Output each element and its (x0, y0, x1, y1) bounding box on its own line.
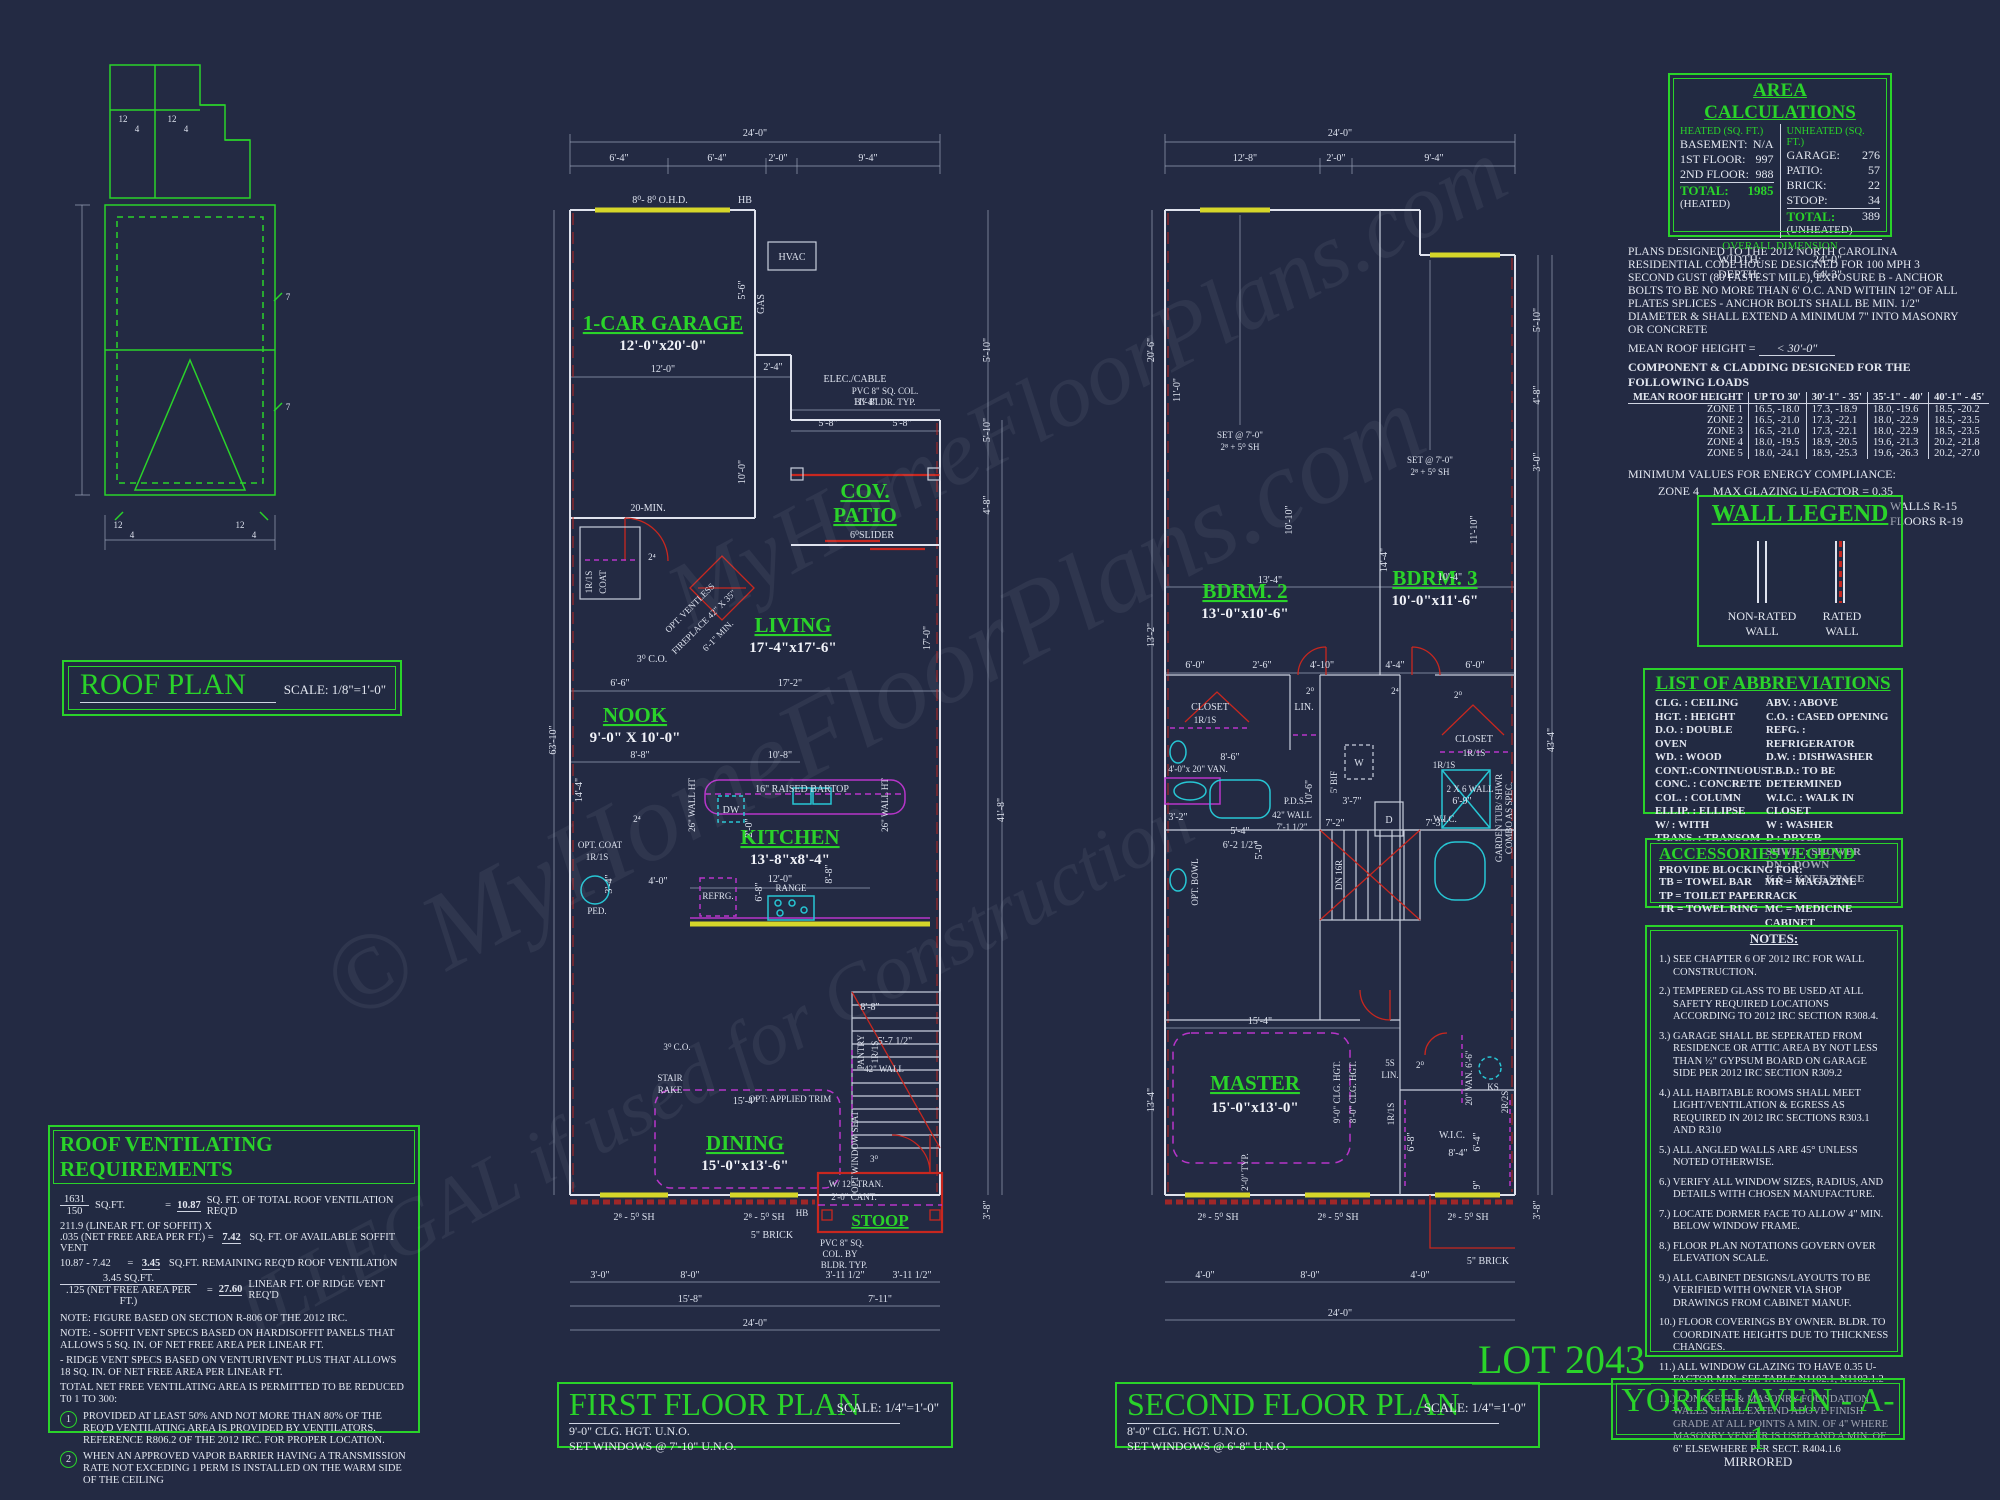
pitch-label: 12 (236, 520, 245, 530)
window-label: 2⁸ - 5⁰ SH (743, 1212, 784, 1223)
dim: 3'-4" (604, 874, 615, 893)
dim: 24'-0" (743, 128, 767, 139)
annotation: 3⁰ C.O. (637, 654, 667, 665)
result-text: SQ. FT. OF TOTAL ROOF VENTILATION REQ'D (207, 1195, 408, 1217)
label: STOOP: (1787, 193, 1828, 208)
dim: 5'-10" (1532, 308, 1543, 332)
annotation: ELEC./CABLE (823, 374, 886, 385)
annotation: PED. (587, 906, 606, 916)
sheet-titleblock: YORKHAVEN - A-1 MIRRORED (1611, 1378, 1905, 1440)
window-label: 2⁸ - 5⁰ SH (1317, 1212, 1358, 1223)
list-item: REFG. : REFRIGERATOR (1766, 724, 1891, 751)
annotation: COAT (598, 570, 608, 594)
item-text: WHEN AN APPROVED VAPOR BARRIER HAVING A … (83, 1451, 408, 1487)
dim: 2'-0" (768, 153, 787, 164)
dim: 4'-4" (1385, 660, 1404, 671)
dim: 3'-2" (1168, 812, 1187, 823)
table-row: ZONE 418.0, -19.518.9, -20.519.6, -21.32… (1628, 437, 1989, 448)
unit: SQ.FT. (124, 1273, 154, 1284)
window-label: 2⁸ - 5⁰ SH (613, 1212, 654, 1223)
total-sub: (UNHEATED) (1787, 224, 1881, 236)
non-rated-wall-label: NON-RATED WALL (1717, 609, 1807, 639)
pitch-label: 4 (184, 124, 189, 134)
total-value: 1985 (1748, 183, 1774, 198)
dim: 6'-8" (1406, 1132, 1417, 1151)
table-row: ZONE 216.5, -21.017.3, -22.118.0, -22.91… (1628, 415, 1989, 426)
energy-compliance-line: MINIMUM VALUES FOR ENERGY COMPLIANCE: (1628, 467, 1964, 482)
first-floor-drawing: 1-CAR GARAGE 12'-0"x20'-0" COV. PATIO LI… (540, 90, 1020, 1380)
dim: 12'-0" (768, 874, 792, 885)
dim: 8'-4" (1448, 1148, 1467, 1159)
dim: 5'-8" (818, 418, 837, 429)
rated-wall-label: RATED WALL (1807, 609, 1877, 639)
dim: 2'-0" (1326, 153, 1345, 164)
first-floor-titleblock: FIRST FLOOR PLAN SCALE: 1/4"=1'-0" 9'-0"… (557, 1382, 953, 1448)
roof-vent-panel: ROOF VENTILATING REQUIREMENTS 1631 150 S… (48, 1125, 420, 1433)
code-notes: PLANS DESIGNED TO THE 2012 NORTH CAROLIN… (1628, 246, 1964, 529)
energy-zone: ZONE 4 (1658, 484, 1699, 499)
roof-plan-drawing: 12 4 12 4 12 4 12 4 7 7 (60, 50, 390, 590)
annotation: 9'-0" CLG. HGT. (1332, 1061, 1342, 1123)
dim: 9'-4" (1424, 153, 1443, 164)
dim: 6'-0" (1185, 660, 1204, 671)
room-nook: NOOK (603, 703, 668, 727)
dim: 2'-6" (1252, 660, 1271, 671)
annotation: OPT. BOWL (1190, 858, 1200, 905)
list-item: NOTE: FIGURE BASED ON SECTION R-806 OF T… (60, 1313, 408, 1325)
unit: SQ.FT. (95, 1200, 125, 1211)
window-label: 2⁸ + 5⁰ SH (1220, 442, 1260, 452)
mean-roof-value: < 30'-0" (1759, 341, 1836, 356)
room-patio: PATIO (833, 503, 896, 527)
list-item: W : WASHER (1766, 819, 1891, 833)
dim: 5'-8" (892, 418, 911, 429)
value: 988 (1756, 167, 1774, 182)
annotation: 6⁰SLIDER (850, 530, 894, 541)
dim: 12'-0" (651, 364, 675, 375)
sheet-name: YORKHAVEN - A-1 (1613, 1382, 1903, 1458)
annotation: SET @ 7'-0" (1407, 455, 1453, 465)
dim: 3'-11 1/2" (825, 1270, 864, 1281)
list-item: TOTAL NET FREE VENTILATING AREA IS PERMI… (60, 1382, 408, 1406)
overall-dimension-header: OVERALL DIMENSION (1678, 240, 1882, 252)
annotation: 4'-0"x 20" VAN. (1168, 764, 1227, 774)
second-floor-scale: SCALE: 1/4"=1'-0" (1424, 1400, 1526, 1416)
total-label: TOTAL: (1680, 183, 1729, 198)
annotation: COL. BY (822, 1249, 858, 1259)
dim: 9" (1472, 1180, 1483, 1189)
vent-item-1: 1 PROVIDED AT LEAST 50% AND NOT MORE THA… (60, 1411, 408, 1447)
pitch-label: 4 (252, 530, 257, 540)
dim: 12'-8" (1233, 153, 1257, 164)
unheated-header: UNHEATED (SQ. FT.) (1787, 126, 1881, 148)
annotation: CLOSET (1455, 734, 1493, 745)
fraction-num: 3.45 (103, 1273, 121, 1284)
dim: 24'-0" (743, 1318, 767, 1329)
dim: 63'-10" (548, 725, 559, 754)
dim: 11'-0" (1172, 378, 1183, 402)
dim: 13'-4" (1146, 1088, 1157, 1112)
room-bdrm3: BDRM. 3 (1392, 566, 1477, 590)
dim: 10'-0" (737, 460, 748, 484)
total-value: 389 (1862, 209, 1880, 224)
annotation: 5" BRICK (751, 1230, 794, 1241)
total-label: TOTAL: (1787, 209, 1836, 224)
label: GARAGE: (1787, 148, 1840, 163)
width-label: WIDTH: (1718, 252, 1761, 267)
second-floor-titleblock: SECOND FLOOR PLAN SCALE: 1/4"=1'-0" 8'-0… (1115, 1382, 1540, 1448)
room-stoop: STOOP (851, 1211, 908, 1230)
dim: 15'-4" (733, 1096, 757, 1107)
second-floor-note2: SET WINDOWS @ 6'-8" U.N.O. (1127, 1439, 1528, 1454)
area-calc-title: AREA CALCULATIONS (1678, 80, 1882, 124)
annotation: 1R/1S (1386, 1103, 1396, 1126)
dim: 6'-4" (707, 153, 726, 164)
annotation: 42" WALL (864, 1064, 904, 1074)
list-item: 1.) SEE CHAPTER 6 OF 2012 IRC FOR WALL C… (1659, 954, 1889, 979)
annotation: GAS (756, 294, 767, 314)
equals: = (207, 1285, 213, 1296)
sheet-sub: MIRRORED (1613, 1454, 1903, 1470)
room-kitchen-size: 13'-8"x8'-4" (750, 852, 830, 868)
room-living-size: 17'-4"x17'-6" (749, 640, 836, 656)
dim: 2'-4" (763, 362, 782, 373)
annotation: GARDEN TUB/ SHWR (1494, 774, 1504, 862)
dim: 14'-4" (1379, 548, 1390, 572)
value: 22 (1868, 178, 1880, 193)
dim: 5'-6" (737, 280, 748, 299)
annotation: OPT. COAT (578, 840, 623, 850)
list-item: HGT. : HEIGHT (1655, 711, 1766, 725)
value: 10.87 (177, 1200, 201, 1212)
dim: 20'-6" (1146, 338, 1157, 362)
annotation: 16" RAISED BARTOP (755, 784, 849, 795)
label: BRICK: (1787, 178, 1827, 193)
col-header: 35'-1" - 40' (1867, 392, 1928, 404)
dim: 8'-8" (860, 1002, 879, 1013)
item-number: 2 (60, 1451, 77, 1468)
annotation: P.D.S. (1284, 796, 1306, 806)
annotation: LIN. (1294, 702, 1313, 713)
dim: 7'-2" (1325, 818, 1344, 829)
room-patio: COV. (840, 479, 889, 503)
annotation: 8'-0" CLG. HGT. (1348, 1061, 1358, 1123)
dim: 14'-4" (574, 778, 585, 802)
annotation: HB (796, 1208, 809, 1218)
annotation: W.I.C. (1439, 1130, 1465, 1141)
table-row: ZONE 316.5, -21.017.3, -22.118.0, -22.91… (1628, 426, 1989, 437)
dim: 4'-10" (1310, 660, 1334, 671)
dim: 6'-4" (1472, 1132, 1483, 1151)
list-item: D.O. : DOUBLE OVEN (1655, 724, 1766, 751)
dim: 24'-0" (1328, 1308, 1352, 1319)
annotation: SET @ 7'-0" (1217, 430, 1263, 440)
list-item: ELLIP. : ELLIPSE (1655, 805, 1766, 819)
line: .035 (NET FREE AREA PER FT.) = (60, 1232, 214, 1243)
dim: 2'-0" (744, 818, 755, 837)
width-value: 24'-0" (1813, 252, 1842, 267)
annotation: 1R/1S (584, 571, 594, 594)
label: BASEMENT: (1680, 137, 1747, 152)
annotation: W/ 12" TRAN. (829, 1179, 884, 1189)
dim: 3'-7" (1342, 796, 1361, 807)
dim: 8'-6" (1220, 752, 1239, 763)
list-item: NOTE: - SOFFIT VENT SPECS BASED ON HARDI… (60, 1328, 408, 1352)
annotation: 5' BIF (1329, 771, 1339, 793)
dim: 15'-4" (1248, 1016, 1272, 1027)
abbreviations-panel: LIST OF ABBREVIATIONS CLG. : CEILINGHGT.… (1643, 668, 1903, 814)
dim: 6'-4" (609, 153, 628, 164)
dim: 43'-4" (1546, 728, 1557, 752)
pitch-label: 4 (130, 530, 135, 540)
annotation: CLOSET (1191, 702, 1229, 713)
list-item: W/ : WITH (1655, 819, 1766, 833)
list-item: 2.) TEMPERED GLASS TO BE USED AT ALL SAF… (1659, 986, 1889, 1024)
dim: 10'-8" (768, 750, 792, 761)
pitch-label: 7 (286, 292, 291, 302)
col-header: 30'-1" - 35' (1806, 392, 1867, 404)
dim: 13'-4" (1258, 575, 1282, 586)
notes-panel: NOTES: 1.) SEE CHAPTER 6 OF 2012 IRC FOR… (1645, 925, 1903, 1357)
room-bdrm3-size: 10'-0"x11'-6" (1392, 593, 1479, 609)
list-item: TP = TOILET PAPER (1659, 890, 1765, 904)
cladding-table: MEAN ROOF HEIGHT UP TO 30' 30'-1" - 35' … (1628, 392, 1989, 459)
cladding-title: COMPONENT & CLADDING DESIGNED FOR THE FO… (1628, 360, 1964, 390)
col-header: MEAN ROOF HEIGHT (1628, 392, 1748, 404)
first-floor-note2: SET WINDOWS @ 7'-10" U.N.O. (569, 1439, 941, 1454)
area-calculations-panel: AREA CALCULATIONS HEATED (SQ. FT.) BASEM… (1668, 73, 1892, 237)
dim: 5'-10" (982, 418, 993, 442)
result-text: LINEAR FT. OF RIDGE VENT REQ'D (248, 1279, 408, 1301)
label: 2ND FLOOR: (1680, 167, 1749, 182)
annotation: HB (738, 195, 752, 206)
annotation: 26" WALL HT (880, 778, 890, 832)
table-row: ZONE 116.5, -18.017.3, -18.918.0, -19.61… (1628, 404, 1989, 416)
dim: 8'-8" (824, 864, 835, 883)
label: 1ST FLOOR: (1680, 152, 1745, 167)
annotation: 1R/1S (1463, 748, 1486, 758)
value: 27.60 (219, 1284, 243, 1296)
acc-col2: MR = MAGAZINE RACKMC = MEDICINE CABINET (1765, 876, 1889, 930)
annotation: 42" WALL (1272, 810, 1312, 820)
list-item: 4.) ALL HABITABLE ROOMS SHALL MEET LIGHT… (1659, 1088, 1889, 1138)
line: 211.9 (LINEAR FT. OF SOFFIT) X (60, 1221, 408, 1232)
dim: 10'-6" (1304, 780, 1315, 804)
annotation: LIN. (1381, 1070, 1398, 1080)
fraction-num: 1631 (60, 1194, 89, 1206)
annotation: 5S (1385, 1058, 1395, 1068)
annotation: 3⁰ C.O. (663, 1042, 690, 1052)
depth-label: DEPTH: (1718, 267, 1760, 282)
list-item: CLG. : CEILING (1655, 697, 1766, 711)
list-item: 10.) FLOOR COVERINGS BY OWNER. BLDR. TO … (1659, 1317, 1889, 1355)
dim: 5'-10" (982, 338, 993, 362)
dim: 6'-6" (610, 678, 629, 689)
accessories-title: ACCESSORIES LEGEND (1659, 844, 1889, 864)
list-item: - RIDGE VENT SPECS BASED ON VENTURIVENT … (60, 1355, 408, 1379)
roof-plan-titleblock: ROOF PLAN SCALE: 1/8"=1'-0" (62, 660, 402, 716)
dim: 6'-2 1/2" (1223, 840, 1258, 851)
dim: 4'-8" (1532, 385, 1543, 404)
list-item: CONT.:CONTINUOUS (1655, 765, 1766, 779)
dim: 7'-11" (868, 1294, 892, 1305)
room-master: MASTER (1210, 1071, 1301, 1095)
depth-value: 64'-3" (1813, 267, 1842, 282)
list-item: D.W. : DISHWASHER (1766, 751, 1891, 765)
label: PATIO: (1787, 163, 1823, 178)
annotation: KS (1487, 1082, 1499, 1092)
window-label: 2⁸ - 5⁰ SH (1447, 1212, 1488, 1223)
wall-legend-title: WALL LEGEND (1699, 501, 1901, 528)
first-floor-scale: SCALE: 1/4"=1'-0" (837, 1400, 939, 1416)
annotation: COMBO AS SPEC. (1504, 782, 1514, 854)
annotation: 1R/1S (586, 852, 609, 862)
annotation: 20" VAN. 6'-6" (1464, 1050, 1474, 1105)
result-text: SQ.FT. REMAINING REQ'D ROOF VENTILATION (169, 1258, 397, 1269)
value: 3.45 (142, 1258, 160, 1270)
dim: 6'-8" (754, 882, 765, 901)
second-floor-note1: 8'-0" CLG. HGT. U.N.O. (1127, 1424, 1528, 1439)
list-item: MR = MAGAZINE RACK (1765, 876, 1889, 903)
list-item: 9.) ALL CABINET DESIGNS/LAYOUTS TO BE VE… (1659, 1273, 1889, 1311)
list-item: 7.) LOCATE DORMER FACE TO ALLOW 4" MIN. … (1659, 1209, 1889, 1234)
mean-roof-label: MEAN ROOF HEIGHT = (1628, 341, 1756, 355)
annotation: 7'-1 1/2" (1276, 822, 1307, 832)
roof-plan-scale: SCALE: 1/8"=1'-0" (284, 682, 386, 698)
pitch-label: 7 (286, 402, 291, 412)
annotation: REFRG. (702, 891, 733, 901)
annotation: DN 16R (1334, 860, 1344, 890)
col-header: UP TO 30' (1748, 392, 1806, 404)
first-floor-note1: 9'-0" CLG. HGT. U.N.O. (569, 1424, 941, 1439)
list-item: T.B.D.: TO BE DETERMINED (1766, 765, 1891, 792)
total-sub: (HEATED) (1680, 198, 1774, 210)
pitch-label: 12 (114, 520, 123, 530)
annotation: HVAC (778, 252, 805, 263)
annotation: 2⁰ (1416, 1060, 1425, 1070)
list-item: 3.) GARAGE SHALL BE SEPERATED FROM RESID… (1659, 1031, 1889, 1081)
dim: 3'-11 1/2" (892, 1270, 931, 1281)
annotation: 2R/2S (1500, 1091, 1510, 1114)
pitch-label: 12 (119, 114, 128, 124)
dim: 17'-0" (922, 626, 933, 650)
list-item: C.O. : CASED OPENING (1766, 711, 1891, 725)
window-label: 2⁸ + 5⁰ SH (1410, 467, 1450, 477)
value: 276 (1862, 148, 1880, 163)
dim: 10'-4" (1438, 572, 1462, 583)
second-floor-drawing: BDRM. 2 13'-0"x10'-6" BDRM. 3 10'-0"x11'… (1090, 90, 1570, 1380)
annotation: 26" WALL HT (687, 778, 697, 832)
heated-header: HEATED (SQ. FT.) (1680, 126, 1774, 137)
list-item: TB = TOWEL BAR (1659, 876, 1765, 890)
annotation: 5" BRICK (1467, 1256, 1510, 1267)
room-garage-size: 12'-0"x20'-0" (619, 338, 706, 354)
list-item: COL. : COLUMN (1655, 792, 1766, 806)
pitch-label: 4 (135, 124, 140, 134)
dim: 6'-0" (1465, 660, 1484, 671)
room-nook-size: 9'-0" X 10'-0" (590, 730, 681, 746)
dim: 3'-0" (590, 1270, 609, 1281)
annotation: 2⁰ (1454, 690, 1463, 700)
annotation: 2⁴ (1391, 686, 1399, 696)
list-item: W.I.C. : WALK IN CLOSET (1766, 792, 1891, 819)
annotation: 1R/1S (1433, 760, 1456, 770)
annotation: W (1354, 758, 1364, 769)
acc-col1: TB = TOWEL BARTP = TOILET PAPERTR = TOWE… (1659, 876, 1765, 930)
roof-plan-title: ROOF PLAN (80, 668, 276, 703)
item-number: 1 (60, 1411, 77, 1428)
annotation: STAIR (657, 1073, 682, 1083)
vent-notes: NOTE: FIGURE BASED ON SECTION R-806 OF T… (60, 1313, 408, 1406)
annotation: PVC 8" SQ. (820, 1238, 864, 1248)
dim: 6'-9" (1452, 796, 1471, 807)
equals: = (165, 1200, 171, 1211)
vent-item-2: 2 WHEN AN APPROVED VAPOR BARRIER HAVING … (60, 1451, 408, 1487)
annotation: 8⁰- 8⁰ O.H.D. (632, 195, 688, 206)
dim: 8'-0" (1300, 1270, 1319, 1281)
dim: 10'-10" (1284, 505, 1295, 534)
annotation: PVC 8" SQ. COL. (852, 386, 918, 396)
fraction-den: .125 (NET FREE AREA PER FT.) (60, 1285, 197, 1307)
list-item: 8.) FLOOR PLAN NOTATIONS GOVERN OVER ELE… (1659, 1241, 1889, 1266)
col-header: 40'-1" - 45' (1929, 392, 1990, 404)
dim: 24'-0" (1328, 128, 1352, 139)
annotation: 20-MIN. (630, 503, 665, 514)
annotation: OPT: APPLIED TRIM (749, 1094, 831, 1104)
dim: 5'-4" (1230, 826, 1249, 837)
annotation: 2⁴ (633, 814, 641, 824)
dim: 4'-0" (1410, 1270, 1429, 1281)
annotation: 2⁰ (1306, 686, 1315, 696)
provide-blocking-label: PROVIDE BLOCKING FOR: (1659, 864, 1889, 876)
window-label: 2⁸ - 5⁰ SH (1197, 1212, 1238, 1223)
value: 57 (1868, 163, 1880, 178)
annotation: OPT. VENTLESS (663, 581, 717, 635)
room-garage: 1-CAR GARAGE (583, 311, 743, 335)
dim: 4'-0" (1195, 1270, 1214, 1281)
dim: 9'-4" (858, 153, 877, 164)
room-bdrm2-size: 13'-0"x10'-6" (1201, 606, 1288, 622)
annotation: 2 X 6 WALL (1446, 784, 1493, 794)
annotation: RAKE (658, 1085, 683, 1095)
list-item: CONC. : CONCRETE (1655, 778, 1766, 792)
list-item: TR = TOWEL RING (1659, 903, 1765, 917)
annotation: DW (723, 805, 740, 816)
roof-vent-title: ROOF VENTILATING REQUIREMENTS (60, 1132, 408, 1182)
dim: 4'-8" (982, 495, 993, 514)
room-kitchen: KITCHEN (740, 825, 839, 849)
table-row: ZONE 518.0, -24.118.9, -25.319.6, -26.32… (1628, 448, 1989, 459)
list-item: WD. : WOOD (1655, 751, 1766, 765)
blueprint-canvas: © MyHomeFloorPlans.com ILLEGAL if used f… (0, 0, 2000, 1500)
dim: 11'-10" (1469, 516, 1480, 545)
value: 7.42 (222, 1232, 240, 1244)
line: 10.87 - 7.42 (60, 1258, 111, 1269)
dim: 8'-0" (680, 1270, 699, 1281)
annotation: 2'-0" TYP. (1240, 1153, 1250, 1191)
dim: 17'-2" (778, 678, 802, 689)
annotation: BLDR. TYP. (821, 1260, 868, 1270)
dim: 13'-2" (1146, 623, 1157, 647)
dim: 41'-8" (996, 798, 1007, 822)
dim: 11'-4" (853, 397, 877, 408)
dim: 3'-8" (982, 1200, 993, 1219)
annotation: 2'-0" CANT. (831, 1192, 877, 1202)
pitch-label: 12 (168, 114, 177, 124)
dim: 7'-3" (1425, 818, 1444, 829)
list-item: 5.) ALL ANGLED WALLS ARE 45° UNLESS NOTE… (1659, 1145, 1889, 1170)
room-living: LIVING (754, 613, 831, 637)
